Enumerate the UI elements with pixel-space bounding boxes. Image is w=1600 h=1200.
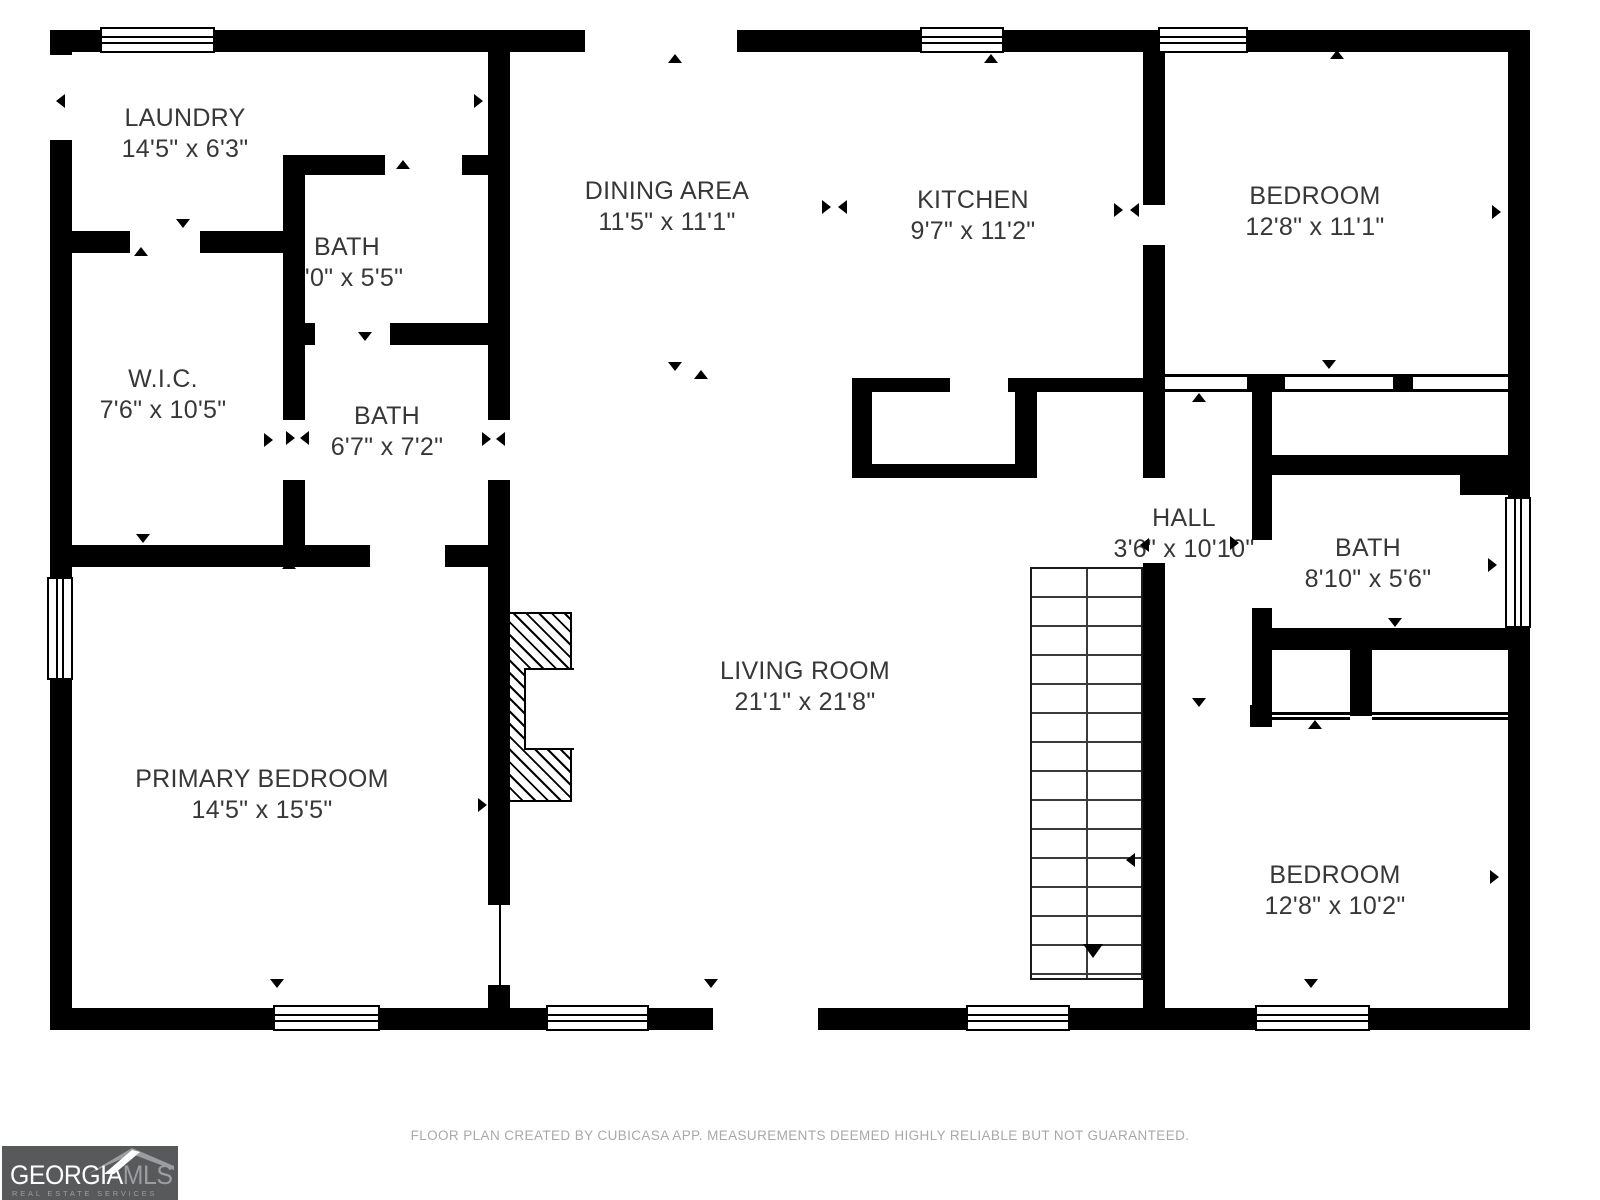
measure-arrow-icon <box>300 431 309 445</box>
measure-arrow-icon <box>282 560 296 569</box>
wall <box>488 52 510 420</box>
wall <box>1070 1008 1255 1030</box>
logo-wordmark: GEORGIAMLS <box>10 1160 172 1191</box>
measure-arrow-icon <box>492 278 501 292</box>
wall <box>1272 455 1460 475</box>
logo-text-primary: GEORGIA <box>10 1160 123 1190</box>
room-name: PRIMARY BEDROOM <box>135 764 389 795</box>
window-pane-line <box>56 578 65 679</box>
room-name: BATH <box>331 401 444 432</box>
wall <box>1350 650 1372 716</box>
measure-arrow-icon <box>482 432 491 446</box>
window-pane-line <box>1514 498 1523 627</box>
measure-arrow-icon <box>496 432 505 446</box>
measure-arrow-icon <box>1322 360 1336 369</box>
measure-arrow-icon <box>1148 870 1157 884</box>
sliding-door-rail <box>1272 712 1350 720</box>
room-label-hall: HALL 3'6" x 10'10" <box>1113 503 1254 565</box>
window <box>966 1005 1070 1031</box>
wall <box>50 1008 273 1030</box>
measure-arrow-icon <box>668 54 682 63</box>
measure-arrow-icon <box>288 278 297 292</box>
room-label-bath-upper: BATH 9'0" x 5'5" <box>291 232 404 294</box>
measure-arrow-icon <box>704 979 718 988</box>
staircase-divider-line <box>1086 569 1088 978</box>
room-label-laundry: LAUNDRY 14'5" x 6'3" <box>122 103 249 165</box>
wall <box>283 155 385 175</box>
room-label-bath-right: BATH 8'10" x 5'6" <box>1305 533 1432 595</box>
room-label-bedroom-bottom: BEDROOM 12'8" x 10'2" <box>1264 860 1405 922</box>
wall <box>1508 30 1530 497</box>
logo-tagline: REAL ESTATE SERVICES <box>12 1189 157 1198</box>
room-label-kitchen: KITCHEN 9'7" x 11'2" <box>911 185 1036 247</box>
wall <box>1250 705 1272 727</box>
wall <box>1143 52 1165 205</box>
wall <box>50 680 72 1030</box>
room-label-wic: W.I.C. 7'6" x 10'5" <box>100 364 227 426</box>
measure-arrow-icon <box>1490 870 1499 884</box>
wall <box>852 378 950 392</box>
wall <box>50 231 130 253</box>
wall <box>1460 455 1508 495</box>
wall <box>1393 374 1413 392</box>
measure-arrow-icon <box>136 534 150 543</box>
room-name: BATH <box>291 232 404 263</box>
measure-arrow-icon <box>286 431 295 445</box>
disclaimer-text: FLOOR PLAN CREATED BY CUBICASA APP. MEAS… <box>0 1128 1600 1143</box>
room-dims: 14'5" x 6'3" <box>122 134 249 165</box>
measure-arrow-icon <box>984 54 998 63</box>
window <box>1158 27 1248 53</box>
window-pane-line <box>1159 36 1247 45</box>
measure-arrow-icon <box>1330 50 1344 59</box>
stairs-down-arrow-icon <box>1083 944 1103 958</box>
room-name: HALL <box>1113 503 1254 534</box>
window-pane-line <box>274 1014 379 1023</box>
room-label-living-room: LIVING ROOM 21'1" x 21'8" <box>720 656 890 718</box>
wall <box>1143 563 1165 1008</box>
measure-arrow-icon <box>396 160 410 169</box>
wall <box>283 157 305 323</box>
wall <box>283 345 305 420</box>
floor-plan: LAUNDRY 14'5" x 6'3" BATH 9'0" x 5'5" W.… <box>0 0 1600 1030</box>
wall <box>283 480 305 545</box>
room-name: BEDROOM <box>1264 860 1405 891</box>
measure-arrow-icon <box>474 94 483 108</box>
room-name: KITCHEN <box>911 185 1036 216</box>
measure-arrow-icon <box>1492 205 1501 219</box>
room-dims: 12'8" x 11'1" <box>1245 212 1384 243</box>
room-label-bedroom-top: BEDROOM 12'8" x 11'1" <box>1245 181 1384 243</box>
window-pane-line <box>101 36 214 45</box>
measure-arrow-icon <box>56 94 65 108</box>
staircase <box>1030 567 1143 980</box>
room-label-bath-middle: BATH 6'7" x 7'2" <box>331 401 444 463</box>
measure-arrow-icon <box>1308 720 1322 729</box>
measure-arrow-icon <box>1230 536 1239 550</box>
window <box>100 27 215 53</box>
wall <box>1143 245 1165 478</box>
measure-arrow-icon <box>1140 538 1149 552</box>
room-name: LAUNDRY <box>122 103 249 134</box>
room-dims: 14'5" x 15'5" <box>135 795 389 826</box>
measure-arrow-icon <box>1388 458 1402 467</box>
wall <box>1248 30 1530 52</box>
measure-arrow-icon <box>358 332 372 341</box>
wall <box>1004 30 1158 52</box>
fireplace-opening <box>524 668 574 750</box>
sliding-door-rail <box>1372 712 1508 720</box>
window <box>1255 1005 1370 1031</box>
measure-arrow-icon <box>264 433 273 447</box>
measure-arrow-icon <box>1488 558 1497 572</box>
logo-text-secondary: MLS <box>123 1160 173 1190</box>
measure-arrow-icon <box>270 979 284 988</box>
measure-arrow-icon <box>1114 203 1123 217</box>
window <box>546 1005 649 1031</box>
measure-arrow-icon <box>668 362 682 371</box>
room-dims: 9'7" x 11'2" <box>911 216 1036 247</box>
wall <box>445 545 510 567</box>
window <box>47 577 73 680</box>
wall <box>1252 628 1508 650</box>
measure-arrow-icon <box>56 431 65 445</box>
wall <box>380 1008 546 1030</box>
wall <box>649 1008 713 1030</box>
room-dims: 9'0" x 5'5" <box>291 263 404 294</box>
wall <box>488 480 510 905</box>
measure-arrow-icon <box>822 200 831 214</box>
measure-arrow-icon <box>1304 979 1318 988</box>
window <box>920 27 1004 53</box>
room-name: LIVING ROOM <box>720 656 890 687</box>
wall <box>1508 628 1530 1030</box>
wall <box>1252 390 1272 540</box>
wall <box>390 323 510 345</box>
wall <box>50 545 370 567</box>
wall <box>283 323 315 345</box>
measure-arrow-icon <box>1388 618 1402 627</box>
room-name: W.I.C. <box>100 364 227 395</box>
sliding-door-rail <box>1165 374 1508 392</box>
measure-arrow-icon <box>1130 203 1139 217</box>
room-label-primary-bedroom: PRIMARY BEDROOM 14'5" x 15'5" <box>135 764 389 826</box>
wall <box>50 30 72 55</box>
measure-arrow-icon <box>176 219 190 228</box>
room-name: BEDROOM <box>1245 181 1384 212</box>
room-name: BATH <box>1305 533 1432 564</box>
floor-plan-page: LAUNDRY 14'5" x 6'3" BATH 9'0" x 5'5" W.… <box>0 0 1600 1200</box>
measure-arrow-icon <box>838 200 847 214</box>
window-pane-line <box>1256 1014 1369 1023</box>
wall <box>50 140 72 577</box>
wall <box>737 30 920 52</box>
room-dims: 6'7" x 7'2" <box>331 432 444 463</box>
measure-arrow-icon <box>134 247 148 256</box>
room-name: DINING AREA <box>585 176 749 207</box>
wall <box>1008 378 1143 392</box>
wall <box>852 464 1037 478</box>
wall <box>215 30 585 52</box>
measure-arrow-icon <box>694 370 708 379</box>
room-dims: 21'1" x 21'8" <box>720 687 890 718</box>
room-label-dining-area: DINING AREA 11'5" x 11'1" <box>585 176 749 238</box>
georgia-mls-logo: GEORGIAMLS REAL ESTATE SERVICES <box>2 1146 178 1200</box>
measure-arrow-icon <box>56 797 65 811</box>
window <box>273 1005 380 1031</box>
measure-arrow-icon <box>1192 698 1206 707</box>
wall <box>818 1008 966 1030</box>
window-pane-line <box>547 1014 648 1023</box>
wall <box>462 155 510 175</box>
room-dims: 7'6" x 10'5" <box>100 395 227 426</box>
measure-arrow-icon <box>1192 393 1206 402</box>
window-pane-line <box>967 1014 1069 1023</box>
door-jamb-line <box>499 905 501 1008</box>
measure-arrow-icon <box>1126 853 1135 867</box>
window-pane-line <box>921 36 1003 45</box>
window <box>1505 497 1531 628</box>
measure-arrow-icon <box>478 798 487 812</box>
room-dims: 11'5" x 11'1" <box>585 207 749 238</box>
room-dims: 8'10" x 5'6" <box>1305 564 1432 595</box>
room-dims: 12'8" x 10'2" <box>1264 891 1405 922</box>
wall <box>1370 1008 1530 1030</box>
